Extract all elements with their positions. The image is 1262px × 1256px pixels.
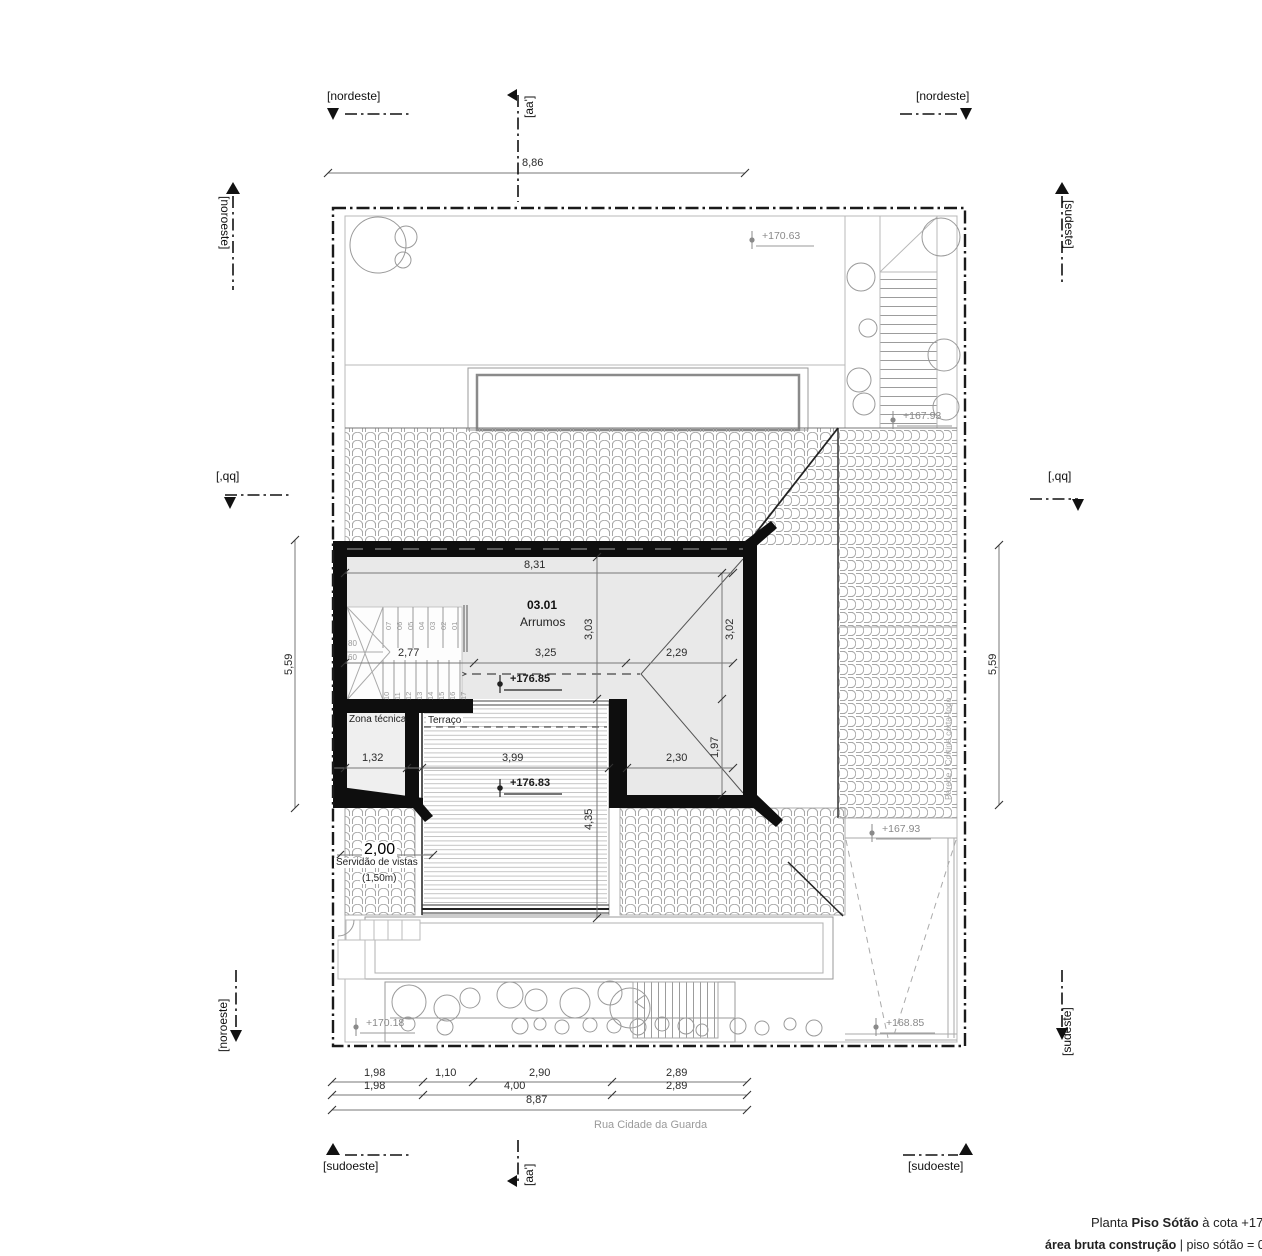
street-name: Rua Cidade da Guarda: [594, 1120, 707, 1131]
dim-wing: 2,30: [666, 753, 687, 764]
exterior-stair-bottom: [633, 982, 718, 1038]
section-marker-aa-top: [aa']: [523, 96, 535, 118]
title-prefix: Planta: [1091, 1215, 1131, 1230]
section-marker-sudeste-top: [sudeste]: [1063, 200, 1075, 249]
level-marker: +170.63: [762, 231, 800, 242]
level-marker: +168.85: [886, 1018, 924, 1029]
stair-step: 03: [429, 622, 437, 630]
stair-step: 12: [405, 692, 413, 700]
section-marker-sudoeste-right: [sudoeste]: [908, 1160, 963, 1172]
dim-bottom-b3: 2,89: [666, 1081, 687, 1092]
room-terraco: Terraço: [426, 716, 463, 726]
dim-stair: 2,77: [398, 648, 419, 659]
room-name: Arrumos: [520, 616, 565, 628]
section-marker-qq-left: [,qq]: [216, 470, 239, 482]
level-marker: +170.18: [366, 1018, 404, 1029]
title-elevation: à cota +17: [1199, 1215, 1262, 1230]
stair-step: 14: [427, 692, 435, 700]
dim-side-right: 5,59: [988, 654, 999, 675]
room-number: 03.01: [527, 599, 557, 611]
drawing-title: Planta Piso Sótão à cota +17: [1091, 1215, 1262, 1230]
patio-outline: [468, 368, 808, 430]
dim-bottom-total: 8,87: [526, 1095, 547, 1106]
stair-width-60: 60: [348, 654, 357, 662]
subtitle-area-value: | piso sótão = 03: [1176, 1238, 1262, 1252]
dim-room-depth-right: 3,02: [725, 619, 736, 640]
dim-room-width: 8,31: [524, 560, 545, 571]
dim-room-depth: 3,03: [584, 619, 595, 640]
dim-wing-depth: 1,97: [710, 737, 721, 758]
dim-room-right: 2,29: [666, 648, 687, 659]
dim-zona: 1,32: [362, 753, 383, 764]
dim-servidao: 2,00: [362, 842, 397, 858]
section-marker-noroeste-top: [noroeste]: [219, 196, 231, 249]
section-marker-noroeste-bottom: [noroeste]: [217, 999, 229, 1052]
firewall-note: Parede | Cortina corta-fogo: [944, 698, 953, 800]
stair-step: 15: [438, 692, 446, 700]
stair-width-80: 80: [348, 640, 357, 648]
section-marker-nordeste-right: [nordeste]: [916, 90, 969, 102]
section-marker-sudoeste-left: [sudoeste]: [323, 1160, 378, 1172]
dim-bottom-a2: 1,10: [435, 1068, 456, 1079]
dim-bottom-b1: 1,98: [364, 1081, 385, 1092]
stair-step: 06: [396, 622, 404, 630]
section-marker-aa-bottom: [aa']: [523, 1164, 535, 1186]
stair-step: 04: [418, 622, 426, 630]
dim-terrace-depth: 4,35: [584, 809, 595, 830]
drawing-subtitle: área bruta construção | piso sótão = 03: [1045, 1238, 1262, 1252]
plan-linework: [0, 0, 1262, 1256]
stair-step: 07: [385, 622, 393, 630]
dim-room-mid: 3,25: [535, 648, 556, 659]
dim-bottom-a4: 2,89: [666, 1068, 687, 1079]
level-marker: +176.83: [510, 778, 550, 789]
servidao-line2: (1,50m): [360, 874, 398, 884]
subtitle-area-label: área bruta construção: [1045, 1238, 1176, 1252]
stair-step: 13: [416, 692, 424, 700]
dim-terrace-width: 3,99: [502, 753, 523, 764]
dim-bottom-b2: 4,00: [504, 1081, 525, 1092]
bay-below: [338, 917, 833, 979]
section-marker-sudeste-bottom: [sudeste]: [1061, 1007, 1073, 1056]
stair-step: 16: [449, 692, 457, 700]
stair-step: 05: [407, 622, 415, 630]
servidao-line1: Servidão de vistas: [334, 858, 420, 868]
stair-step: 10: [383, 692, 391, 700]
dim-bottom-a3: 2,90: [529, 1068, 550, 1079]
section-marker-nordeste-left: [nordeste]: [327, 90, 380, 102]
stair-step: 11: [394, 692, 402, 700]
level-marker: +167.93: [903, 411, 941, 422]
level-marker: +167.93: [882, 824, 920, 835]
terrace: [422, 701, 609, 915]
stair-step: 17: [460, 692, 468, 700]
dim-site-top: 8,86: [522, 158, 543, 169]
floor-plan-drawing: [nordeste][nordeste][aa'][aa'][noroeste]…: [0, 0, 1262, 1256]
section-marker-qq-right: [,qq]: [1048, 470, 1071, 482]
dim-bottom-a1: 1,98: [364, 1068, 385, 1079]
level-marker: +176.85: [510, 674, 550, 685]
room-zona-tecnica: Zona técnica: [349, 715, 406, 725]
title-plan-name: Piso Sótão: [1131, 1215, 1198, 1230]
stair-step: 01: [451, 622, 459, 630]
dim-side-left: 5,59: [284, 654, 295, 675]
stair-step: 02: [440, 622, 448, 630]
